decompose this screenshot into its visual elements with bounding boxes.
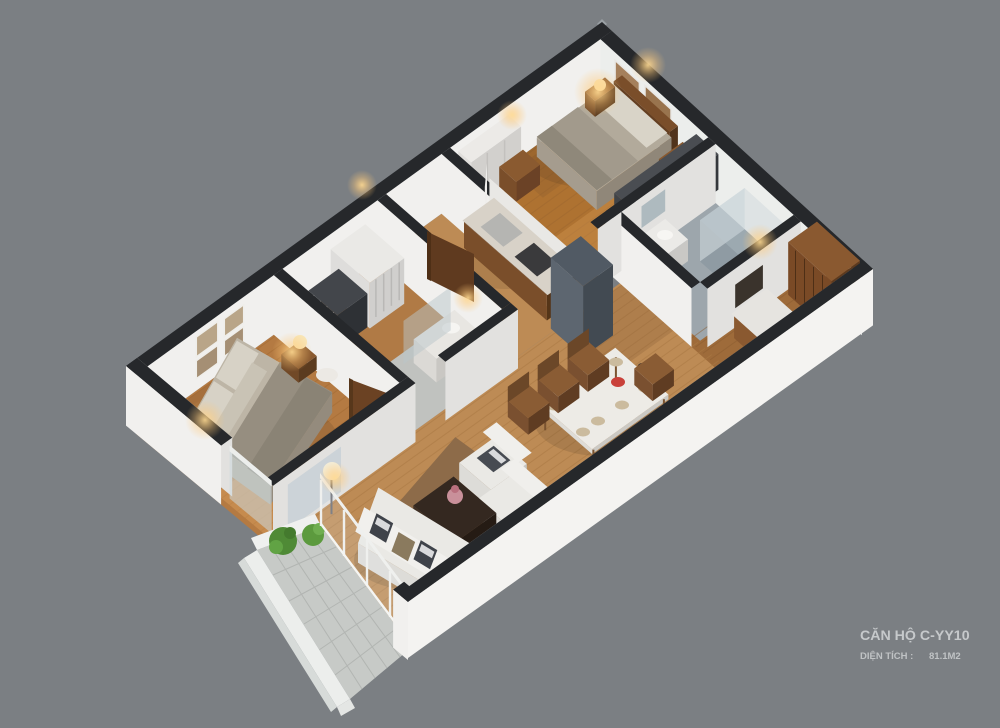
svg-text:DIỆN TÍCH :: DIỆN TÍCH : [860,650,913,662]
svg-text:CĂN HỘ C-YY10: CĂN HỘ C-YY10 [860,626,970,644]
svg-text:81.1M2: 81.1M2 [929,651,961,662]
